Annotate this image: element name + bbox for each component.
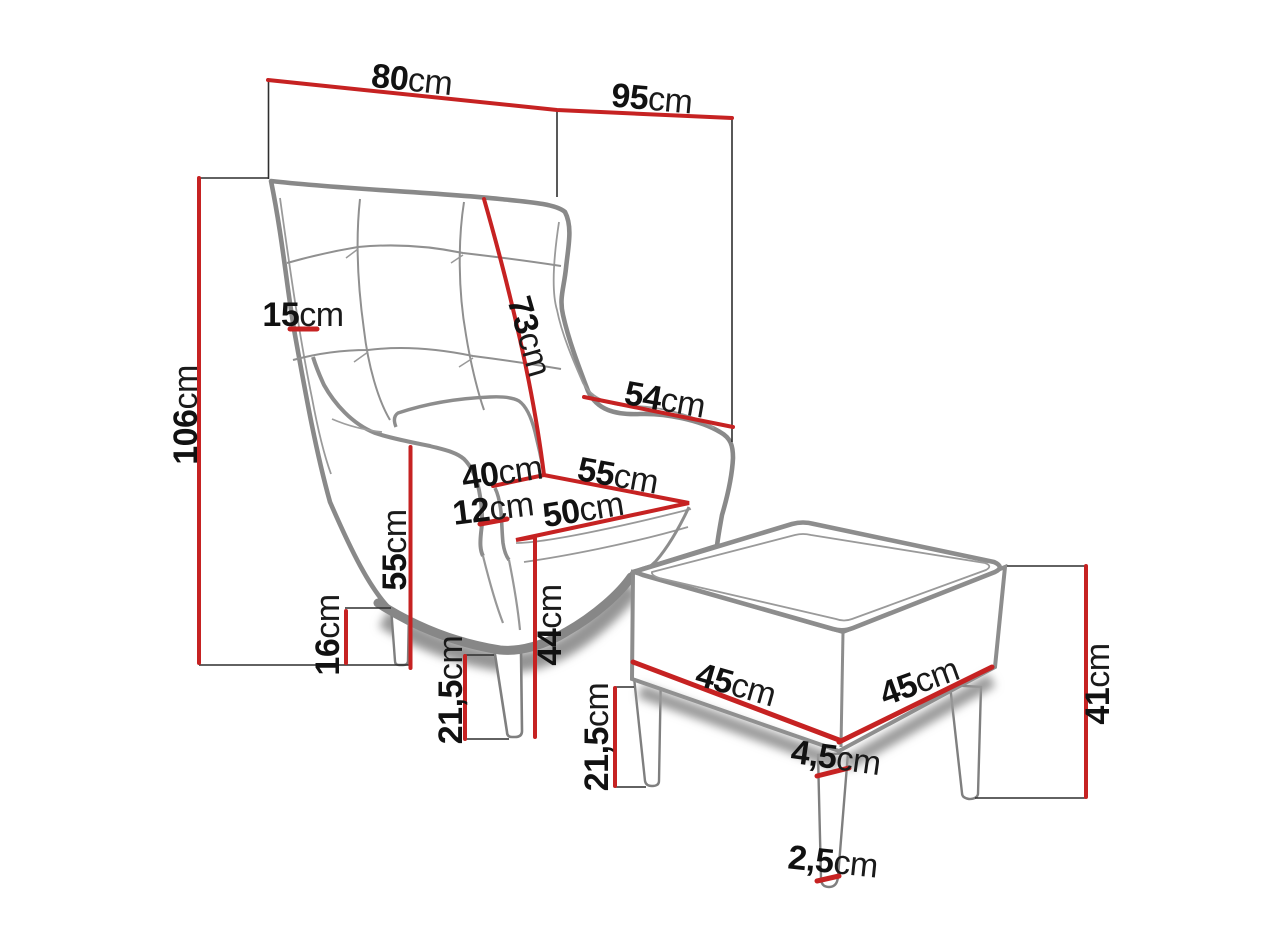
svg-text:21,5cm: 21,5cm <box>432 636 470 745</box>
svg-text:16cm: 16cm <box>309 594 347 675</box>
svg-text:21,5cm: 21,5cm <box>578 683 616 792</box>
svg-text:95cm: 95cm <box>610 77 694 122</box>
svg-text:15cm: 15cm <box>262 296 343 334</box>
svg-text:55cm: 55cm <box>376 509 414 590</box>
svg-text:44cm: 44cm <box>531 584 569 665</box>
svg-text:41cm: 41cm <box>1079 643 1117 724</box>
svg-text:106cm: 106cm <box>167 365 205 465</box>
